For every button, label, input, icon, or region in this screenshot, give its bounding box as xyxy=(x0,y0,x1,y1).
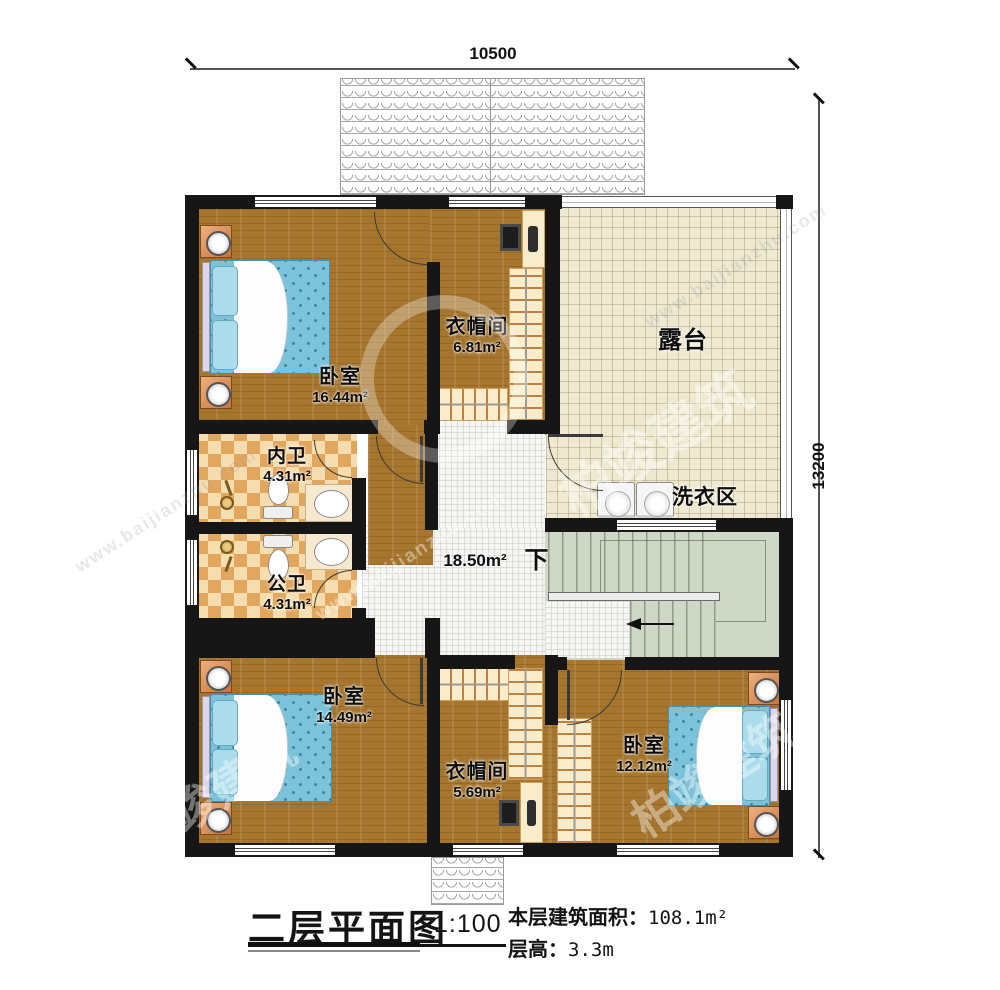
floor-area-row: 本层建筑面积：108.1m² xyxy=(508,901,728,930)
nightstand xyxy=(200,376,232,409)
wall-segment xyxy=(185,618,375,658)
stair-direction-arrow xyxy=(626,618,641,630)
shower-head xyxy=(220,540,234,554)
bed-blanket xyxy=(234,695,288,801)
window xyxy=(255,195,376,209)
window xyxy=(617,843,719,857)
bed-pillow xyxy=(212,320,238,370)
wardrobe-rack xyxy=(437,668,509,701)
desk-chair xyxy=(527,800,536,826)
dimension-top-value: 10500 xyxy=(450,44,536,64)
bed-blanket xyxy=(234,261,288,373)
floor-understair xyxy=(545,601,630,658)
wall-corner xyxy=(776,195,793,209)
roof-hatch-divider xyxy=(490,78,491,195)
wall-segment xyxy=(716,518,781,532)
nightstand xyxy=(748,672,780,705)
title-rule xyxy=(420,944,506,947)
wall-segment xyxy=(185,209,199,450)
terrace-parapet-top xyxy=(562,196,776,208)
bed-headboard xyxy=(202,696,210,798)
title-underline xyxy=(248,942,420,947)
room-label-bedroom2: 卧室 14.49m² xyxy=(284,686,404,726)
bed-pillow xyxy=(212,749,238,795)
wall-segment xyxy=(625,657,781,670)
shower-head xyxy=(220,496,234,510)
sink-counter xyxy=(305,532,355,570)
roof-hatch-top xyxy=(340,78,645,195)
floor-area-label: 本层建筑面积： xyxy=(508,907,648,929)
wall-segment xyxy=(427,655,440,845)
nightstand xyxy=(748,806,780,839)
window xyxy=(185,540,199,605)
floor-height-value: 3.3m xyxy=(568,939,614,961)
bed-pillow xyxy=(212,700,238,746)
sink-counter xyxy=(305,484,355,522)
room-label-laundry: 洗衣区 xyxy=(645,486,765,510)
stairs-down-label: 下 xyxy=(517,547,557,575)
stair-treads-lower xyxy=(630,601,716,658)
floor-area-value: 108.1m² xyxy=(648,907,728,929)
desk-monitor xyxy=(500,224,521,251)
window xyxy=(449,195,525,209)
toilet-tank xyxy=(263,535,293,548)
floor-height-row: 层高：3.3m xyxy=(508,933,614,962)
wall-segment xyxy=(185,195,255,209)
wall-segment xyxy=(779,518,793,700)
bed-pillow xyxy=(742,710,768,754)
wall-segment xyxy=(335,843,453,857)
title-underline-thin xyxy=(248,950,420,952)
room-label-cloakroom2: 衣帽间 5.69m² xyxy=(417,761,537,801)
bed-headboard xyxy=(202,262,210,372)
wall-segment xyxy=(376,195,449,209)
stair-direction-line xyxy=(640,623,674,625)
stair-handrail xyxy=(548,592,720,601)
nightstand xyxy=(200,660,232,693)
bed-headboard xyxy=(770,708,778,802)
wall-segment xyxy=(545,209,560,425)
floor-plan: 卧室 16.44m² 衣帽间 6.81m² 露台 内卫 4.31m² 公卫 4.… xyxy=(0,0,1000,990)
nightstand xyxy=(200,225,232,258)
room-label-ensuite-bath: 内卫 4.31m² xyxy=(237,446,337,485)
window xyxy=(235,843,335,857)
desk-monitor xyxy=(499,800,519,826)
wall-segment xyxy=(719,843,793,857)
wall-segment xyxy=(525,195,562,209)
dimension-right-value: 13200 xyxy=(809,425,829,507)
door-leaf xyxy=(420,658,423,704)
window xyxy=(453,843,523,857)
bed-pillow xyxy=(212,266,238,316)
wall-segment xyxy=(545,518,617,532)
window xyxy=(617,518,716,532)
wall-segment xyxy=(556,657,567,670)
room-label-terrace: 露台 xyxy=(623,327,743,355)
wall-segment xyxy=(523,843,617,857)
room-label-public-bath: 公卫 4.31m² xyxy=(237,574,337,613)
door-leaf xyxy=(567,670,570,720)
wall-segment xyxy=(185,522,357,534)
bed-pillow xyxy=(742,757,768,801)
nightstand xyxy=(200,802,232,835)
desk-chair xyxy=(528,226,538,252)
wall-segment xyxy=(185,420,378,434)
wall-segment xyxy=(425,618,440,658)
wall-segment xyxy=(433,655,515,669)
window xyxy=(185,450,199,515)
dimension-line-top xyxy=(190,68,795,70)
toilet-tank xyxy=(263,506,293,519)
terrace-parapet-right xyxy=(780,209,792,518)
window xyxy=(779,700,793,790)
floor-height-label: 层高： xyxy=(508,939,568,961)
wall-segment xyxy=(185,843,235,857)
plan-scale: 1:100 xyxy=(434,910,502,939)
room-label-bedroom3: 卧室 12.12m² xyxy=(584,735,704,775)
